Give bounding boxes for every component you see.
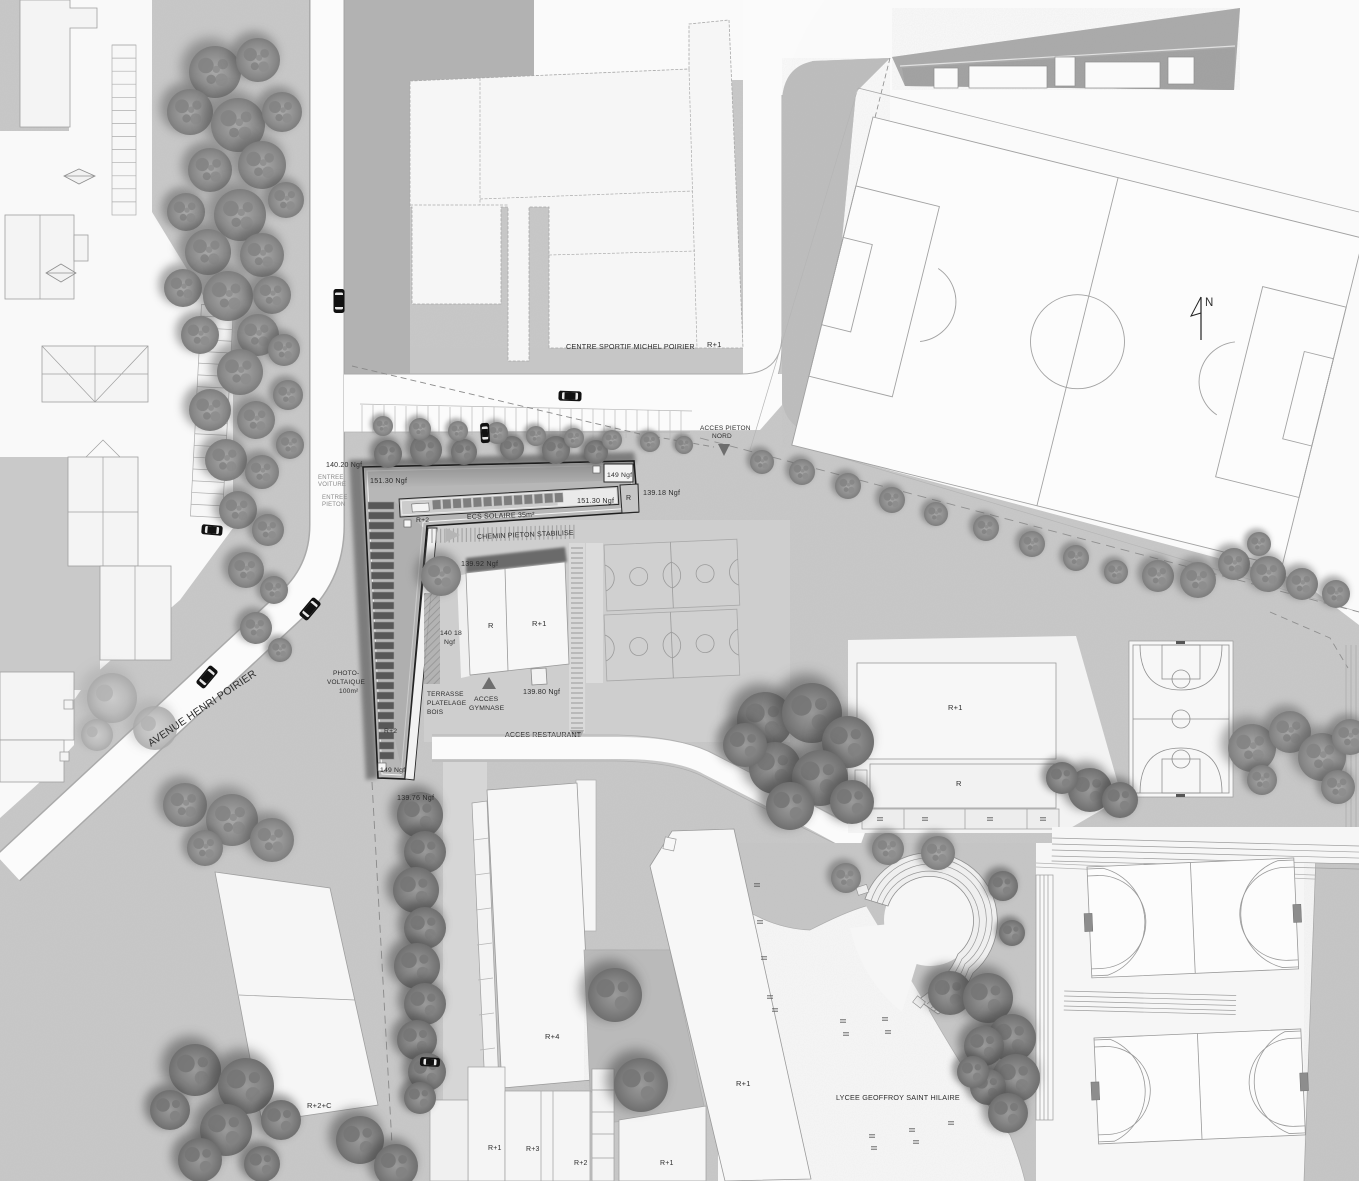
svg-text:PHOTO-: PHOTO- (333, 670, 359, 677)
svg-text:ENTREE: ENTREE (322, 495, 348, 501)
svg-text:R: R (488, 621, 494, 630)
svg-text:R+1: R+1 (532, 619, 547, 628)
svg-text:NORD: NORD (712, 433, 732, 440)
svg-text:R: R (956, 779, 962, 788)
svg-text:GYMNASE: GYMNASE (469, 705, 505, 712)
svg-text:R+1: R+1 (736, 1079, 751, 1088)
svg-text:R+1: R+1 (707, 340, 722, 349)
svg-text:PLATELAGE: PLATELAGE (427, 700, 467, 707)
svg-text:140.20 Ngf: 140.20 Ngf (326, 462, 362, 469)
svg-text:149 Ngf: 149 Ngf (607, 472, 632, 479)
svg-text:R+2: R+2 (574, 1160, 588, 1167)
svg-text:R+4: R+4 (545, 1032, 560, 1041)
svg-text:139.80 Ngf: 139.80 Ngf (523, 687, 560, 696)
svg-text:151.30 Ngf: 151.30 Ngf (370, 476, 407, 485)
svg-text:R+1: R+1 (488, 1145, 502, 1152)
svg-text:BOIS: BOIS (427, 709, 444, 716)
svg-text:ACCES PIETON: ACCES PIETON (700, 425, 751, 432)
svg-text:139.76 Ngf: 139.76 Ngf (397, 793, 434, 802)
svg-text:ENTREE: ENTREE (318, 475, 344, 481)
svg-text:R+1: R+1 (660, 1160, 674, 1167)
svg-text:149 Ngf: 149 Ngf (380, 767, 405, 774)
svg-text:TERRASSE: TERRASSE (427, 691, 464, 698)
svg-text:140 18: 140 18 (440, 630, 462, 637)
svg-text:R+1: R+1 (948, 703, 963, 712)
svg-text:R+2: R+2 (384, 728, 397, 735)
svg-text:ACCES: ACCES (474, 696, 499, 703)
svg-text:PIETON: PIETON (322, 502, 345, 508)
svg-text:LYCEE GEOFFROY SAINT HILAIRE: LYCEE GEOFFROY SAINT HILAIRE (836, 1093, 960, 1102)
svg-text:R+3: R+3 (526, 1146, 540, 1153)
svg-text:R: R (626, 495, 631, 502)
svg-text:139.18 Ngf: 139.18 Ngf (643, 488, 680, 497)
svg-text:151.30 Ngf: 151.30 Ngf (577, 496, 614, 505)
svg-text:VOITURE: VOITURE (318, 482, 346, 488)
svg-text:VOLTAIQUE: VOLTAIQUE (327, 679, 366, 686)
svg-text:Ngf: Ngf (444, 639, 455, 646)
svg-text:N: N (1205, 297, 1214, 309)
svg-text:CENTRE SPORTIF MICHEL POIRIER: CENTRE SPORTIF MICHEL POIRIER (566, 342, 695, 351)
svg-text:139.92 Ngf: 139.92 Ngf (461, 559, 498, 568)
svg-text:R+2: R+2 (416, 517, 429, 524)
svg-text:R+2+C: R+2+C (307, 1101, 332, 1110)
svg-text:100m²: 100m² (339, 688, 359, 695)
